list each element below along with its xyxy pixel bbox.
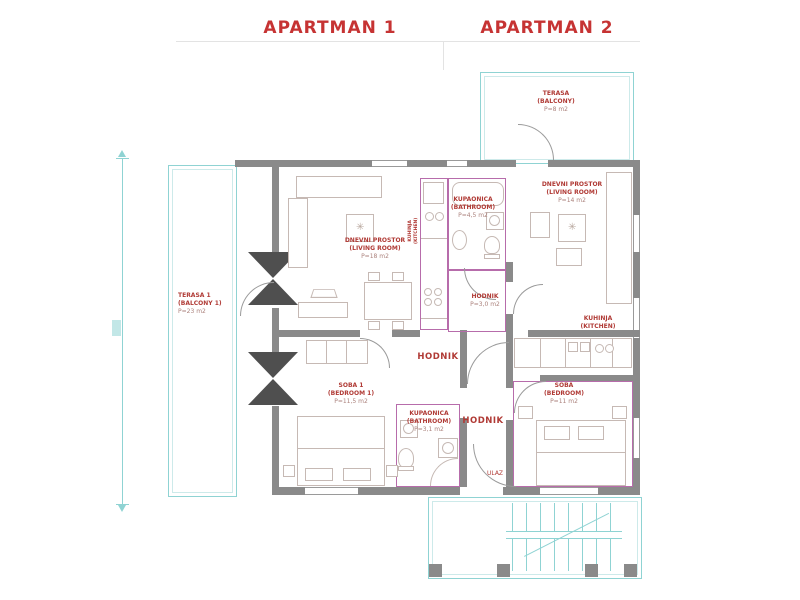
- wall-segment: [358, 487, 460, 495]
- sliding-door-icon: [248, 352, 300, 406]
- room-label-hall3: HODNIK: [448, 416, 518, 426]
- window: [305, 487, 358, 495]
- room-name-en: (LIVING ROOM): [522, 189, 622, 197]
- room-name: DNEVNI PROSTOR: [522, 181, 622, 189]
- dimension-arrow-top: [118, 150, 126, 157]
- wall-segment: [598, 487, 640, 495]
- pillar: [429, 564, 442, 577]
- sink-bowl: [595, 344, 604, 353]
- wall-segment: [392, 330, 420, 337]
- room-name: KUPAONICA: [435, 196, 511, 204]
- window: [633, 418, 640, 458]
- room-name-en: (BATHROOM): [435, 204, 511, 212]
- room-label-hall2: HODNIK P=3,0 m2: [455, 293, 515, 309]
- wardrobe-divider: [346, 340, 347, 364]
- pillar: [624, 564, 637, 577]
- door-arc: [240, 282, 274, 316]
- chair: [392, 272, 404, 281]
- sink-bowl: [425, 212, 434, 221]
- blanket-line: [297, 448, 385, 449]
- nightstand: [386, 465, 398, 477]
- wardrobe: [306, 340, 368, 364]
- dimension-tick-top: [116, 158, 129, 159]
- tv-unit: [298, 302, 348, 318]
- pillar: [497, 564, 510, 577]
- dining-table: [364, 282, 412, 320]
- wall-segment: [633, 160, 640, 215]
- room-area: P=11 m2: [536, 398, 592, 406]
- room-label-bedroom2: SOBA (BEDROOM) P=11 m2: [536, 382, 592, 405]
- apartment2-title: APARTMAN 2: [472, 18, 622, 38]
- dimension-text-smudge: [112, 320, 121, 336]
- stove-burner: [568, 342, 578, 352]
- wall-segment: [407, 160, 447, 167]
- title-underline: [176, 41, 640, 42]
- chair: [392, 321, 404, 330]
- door-arc: [513, 284, 543, 314]
- dimension-line: [122, 158, 123, 505]
- balcony2-outline: [480, 72, 634, 164]
- window: [540, 487, 598, 495]
- toilet: [398, 448, 414, 468]
- room-name-en: (BALCONY 1): [178, 300, 236, 308]
- wall-segment: [272, 487, 305, 495]
- room-name: KUHINJA: [568, 315, 628, 323]
- stove-burner: [424, 298, 432, 306]
- room-area: P=3,1 m2: [398, 426, 460, 434]
- wall-segment: [528, 330, 640, 337]
- wall-segment: [272, 160, 279, 252]
- room-name: SOBA: [536, 382, 592, 390]
- stove-burner: [424, 288, 432, 296]
- pillar: [585, 564, 598, 577]
- entrance-door-arc: [473, 444, 516, 487]
- blanket-line: [536, 452, 626, 453]
- wall-segment: [633, 252, 640, 298]
- wardrobe-divider: [326, 340, 327, 364]
- wall-segment: [506, 262, 513, 282]
- sink-bowl: [442, 442, 454, 454]
- apartment1-title: APARTMAN 1: [255, 18, 405, 38]
- room-name-en: (BEDROOM): [536, 390, 592, 398]
- room-area: P=14 m2: [522, 197, 622, 205]
- plant-icon: ✳: [568, 223, 576, 233]
- wall-segment: [279, 330, 360, 337]
- wall-segment: [503, 487, 540, 495]
- room-name: HODNIK: [455, 293, 515, 301]
- room-area: P=8 m2: [516, 106, 596, 114]
- counter-line: [565, 338, 566, 368]
- nightstand: [518, 406, 533, 419]
- room-area: P=11,5 m2: [318, 398, 384, 406]
- toilet-tank: [484, 254, 500, 259]
- room-area: P=18 m2: [320, 253, 430, 261]
- room-name-en: (BALCONY): [516, 98, 596, 106]
- toilet-tank: [398, 466, 414, 471]
- stove-burner: [580, 342, 590, 352]
- room-label-living2: DNEVNI PROSTOR (LIVING ROOM) P=14 m2: [522, 181, 622, 204]
- room-label-bathroom1: KUPAONICA (BATHROOM) P=4,5 m2: [435, 196, 511, 219]
- room-name: SOBA 1: [318, 382, 384, 390]
- room-name: TERASA: [516, 90, 596, 98]
- room-label-terasa1: TERASA 1 (BALCONY 1) P=23 m2: [174, 292, 236, 315]
- room-name-en: (KITCHEN): [568, 323, 628, 331]
- wall-segment: [467, 160, 516, 167]
- window: [447, 160, 467, 167]
- title-divider: [443, 42, 444, 70]
- balcony1-outline: [168, 165, 237, 497]
- room-area: P=4,5 m2: [435, 212, 511, 220]
- armchair: [556, 248, 582, 266]
- room-label-terasa-balcony: TERASA (BALCONY) P=8 m2: [516, 90, 596, 113]
- tv-icon: [310, 289, 337, 298]
- counter-line: [540, 338, 541, 368]
- counter-line: [590, 338, 591, 368]
- room-area: P=3,0 m2: [455, 301, 515, 309]
- counter-line: [612, 338, 613, 368]
- room-label-bedroom1: SOBA 1 (BEDROOM 1) P=11,5 m2: [318, 382, 384, 405]
- pillow: [343, 468, 371, 481]
- wall-segment: [460, 418, 467, 487]
- window: [633, 215, 640, 252]
- counter-line: [421, 318, 447, 319]
- room-name: TERASA 1: [178, 292, 236, 300]
- plant-icon: ✳: [356, 223, 364, 233]
- chair: [368, 272, 380, 281]
- toilet: [484, 236, 500, 254]
- window: [372, 160, 407, 167]
- room-label-kitchen1: KUHINJA (KITCHEN): [408, 209, 420, 253]
- sink: [452, 230, 467, 250]
- stove-burner: [434, 288, 442, 296]
- pillow: [578, 426, 604, 440]
- pillow: [544, 426, 570, 440]
- room-name-en: (KITCHEN): [414, 209, 420, 253]
- room-area: P=23 m2: [178, 308, 236, 316]
- triangle-down: [248, 352, 298, 378]
- wall-segment: [272, 406, 279, 487]
- stove-burner: [434, 298, 442, 306]
- door-arc: [467, 342, 509, 384]
- armchair: [530, 212, 550, 238]
- room-label-entrance: ULAZ: [475, 470, 515, 478]
- room-name-en: (BEDROOM 1): [318, 390, 384, 398]
- nightstand: [283, 465, 295, 477]
- triangle-up: [248, 379, 298, 405]
- sink-bowl: [605, 344, 614, 353]
- floor-plan-canvas: APARTMAN 1 APARTMAN 2: [0, 0, 800, 600]
- chair: [368, 321, 380, 330]
- room-label-kitchen2: KUHINJA (KITCHEN): [568, 315, 628, 331]
- wall-segment: [235, 160, 372, 167]
- dimension-arrow-bottom: [118, 505, 126, 512]
- wall-segment: [548, 160, 640, 167]
- nightstand: [612, 406, 627, 419]
- sofa: [296, 176, 382, 198]
- sofa: [288, 198, 308, 268]
- pillow: [305, 468, 333, 481]
- room-label-hall1: HODNIK: [408, 352, 468, 362]
